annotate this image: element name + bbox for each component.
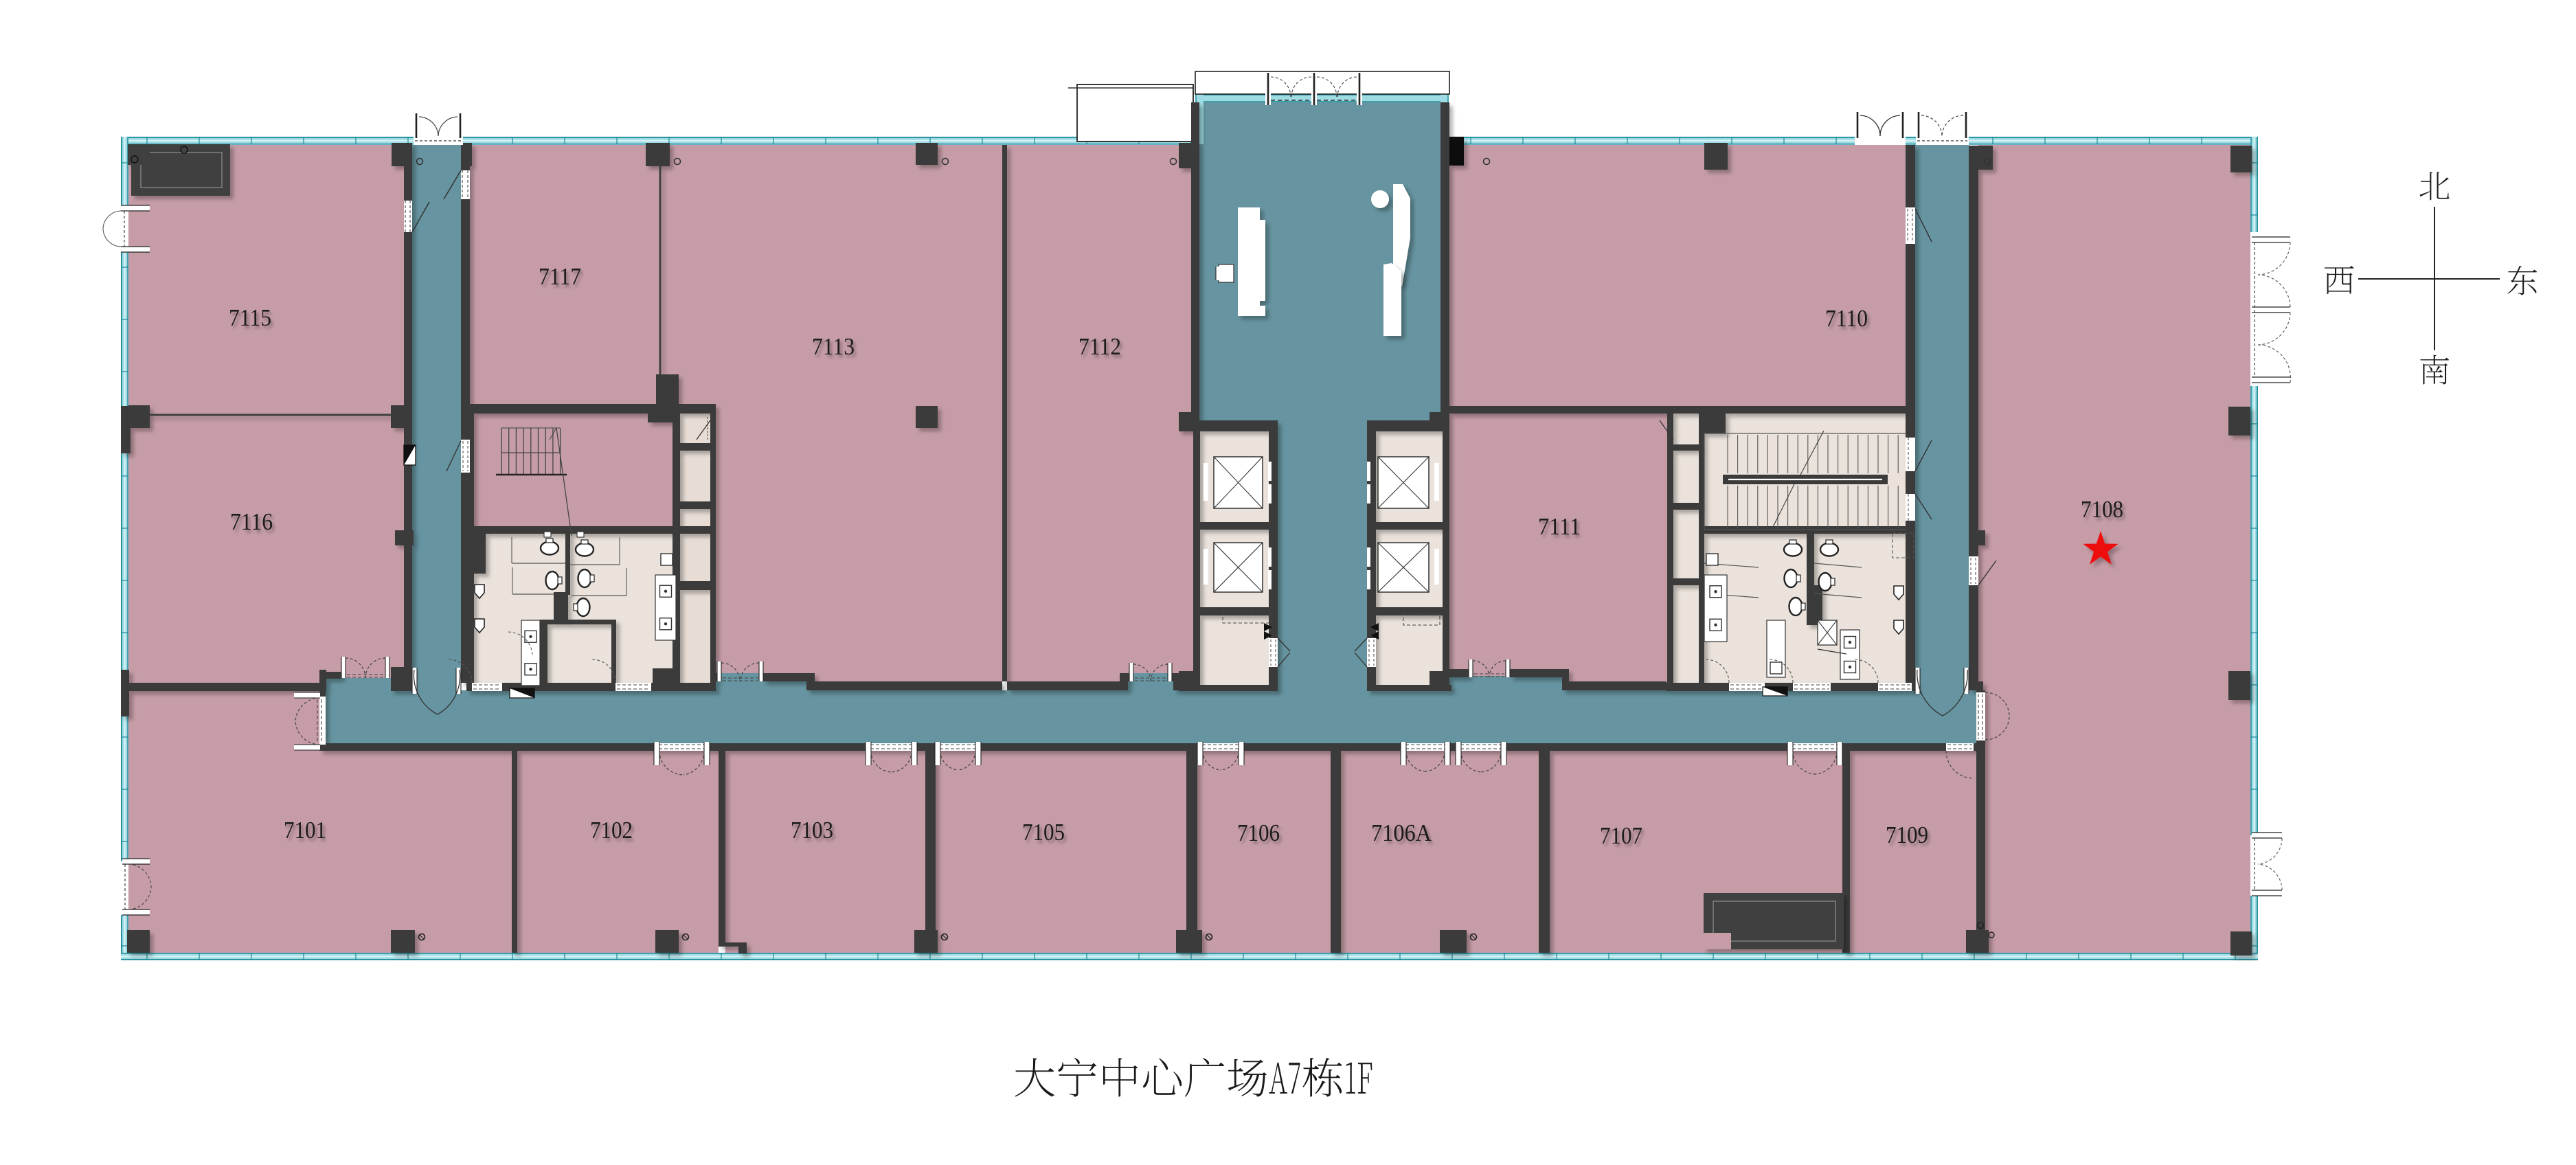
svg-text:7106: 7106	[1237, 819, 1280, 846]
svg-text:7117: 7117	[539, 263, 581, 290]
svg-text:7108: 7108	[2081, 496, 2123, 523]
svg-text:7109: 7109	[1886, 822, 1928, 848]
svg-text:7110: 7110	[1825, 305, 1868, 332]
svg-text:7112: 7112	[1078, 333, 1121, 360]
svg-text:7115: 7115	[229, 304, 271, 331]
svg-text:7116: 7116	[230, 508, 273, 535]
svg-text:7107: 7107	[1600, 822, 1642, 849]
svg-text:7113: 7113	[812, 333, 855, 360]
svg-text:7102: 7102	[590, 817, 633, 844]
svg-text:7111: 7111	[1538, 513, 1581, 540]
svg-text:7101: 7101	[284, 817, 326, 844]
svg-text:7105: 7105	[1022, 819, 1065, 846]
svg-text:7103: 7103	[791, 817, 833, 844]
svg-text:7106A: 7106A	[1371, 819, 1432, 846]
